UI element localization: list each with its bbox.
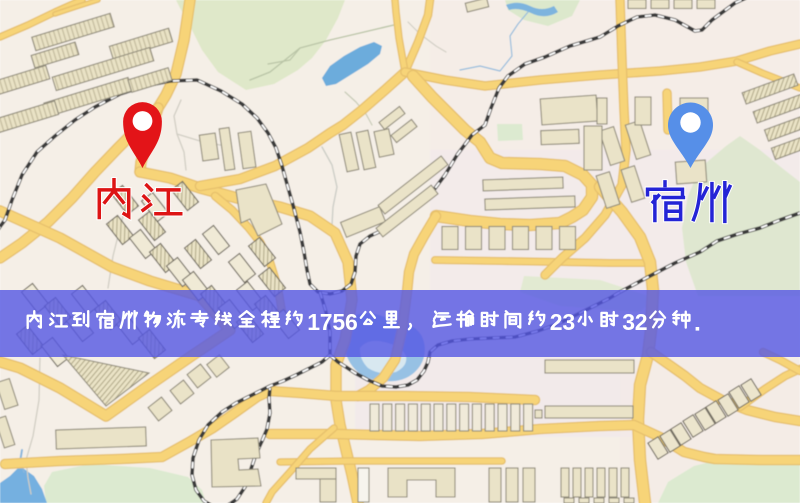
svg-text:3: 3 [622,309,635,335]
svg-text:5: 5 [332,309,345,335]
svg-text:3: 3 [562,309,575,335]
svg-text:2: 2 [550,309,563,335]
svg-text:2: 2 [635,309,648,335]
svg-text:1: 1 [307,309,320,335]
svg-text:7: 7 [320,309,333,335]
svg-text:6: 6 [345,309,358,335]
